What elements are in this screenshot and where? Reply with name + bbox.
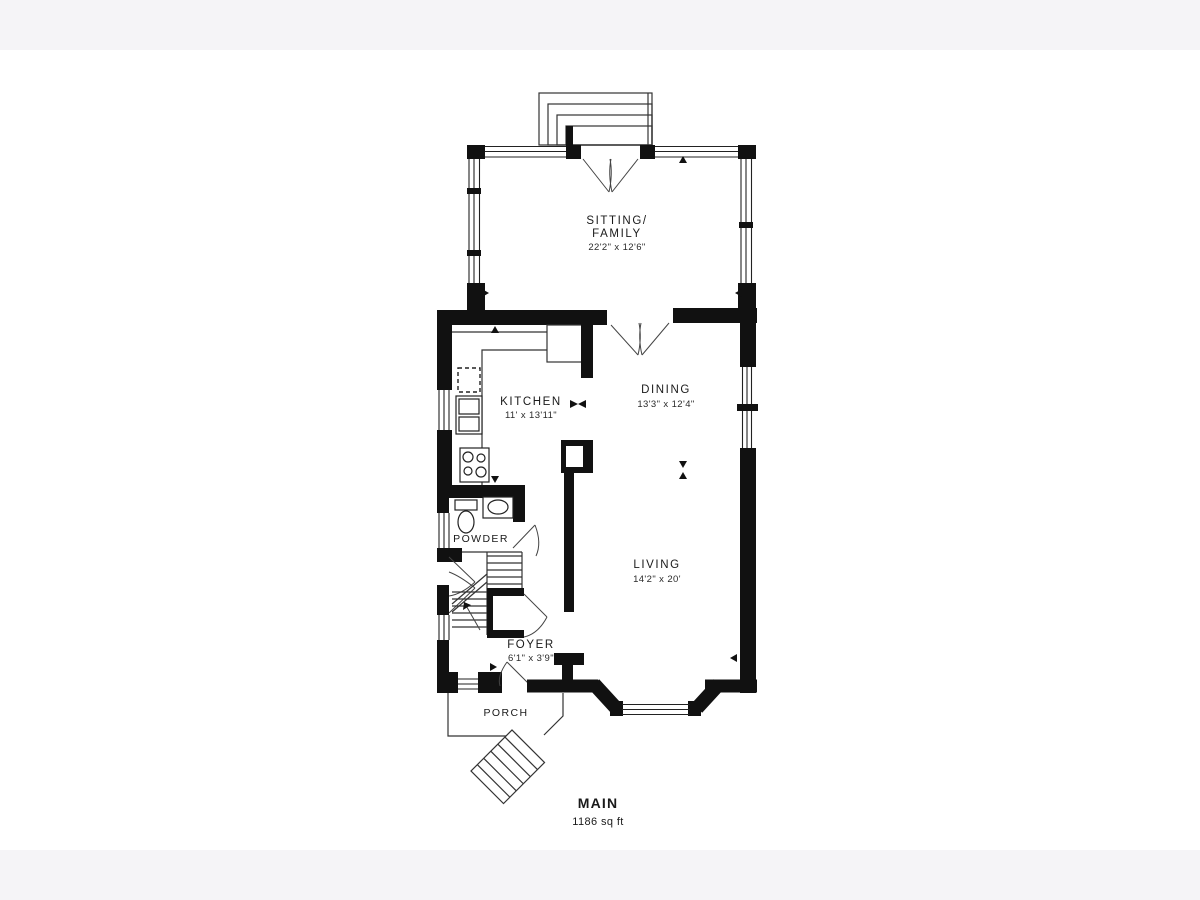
porch-label: PORCH [484,707,529,719]
kitchen-dishwasher [458,368,480,392]
floor-area: 1186 sq ft [572,816,624,828]
sitting-room-label-line1: SITTING/ [586,215,647,227]
canvas-background [0,50,1200,850]
living-label: LIVING [633,559,680,571]
sitting-room-dims: 22'2" x 12'6" [588,242,645,253]
kitchen-label: KITCHEN [500,396,562,408]
kitchen-sink [456,396,482,434]
powder-sink [483,497,513,518]
dining-label: DINING [641,384,691,396]
powder-label: POWDER [453,533,509,545]
kitchen-dims: 11' x 13'11" [505,410,557,421]
foyer-dims: 6'1" x 3'9" [508,653,554,664]
foyer-label: FOYER [507,639,555,651]
floorplan-page: SITTING/ FAMILY 22'2" x 12'6" KITCHEN 11… [0,0,1200,900]
sitting-room-label-line2: FAMILY [592,228,642,240]
floorplan-drawing: SITTING/ FAMILY 22'2" x 12'6" KITCHEN 11… [0,0,1200,900]
living-dims: 14'2" x 20' [633,574,681,585]
floor-title: MAIN [578,795,619,811]
kitchen-cooktop [460,448,489,482]
dining-dims: 13'3" x 12'4" [637,399,694,410]
